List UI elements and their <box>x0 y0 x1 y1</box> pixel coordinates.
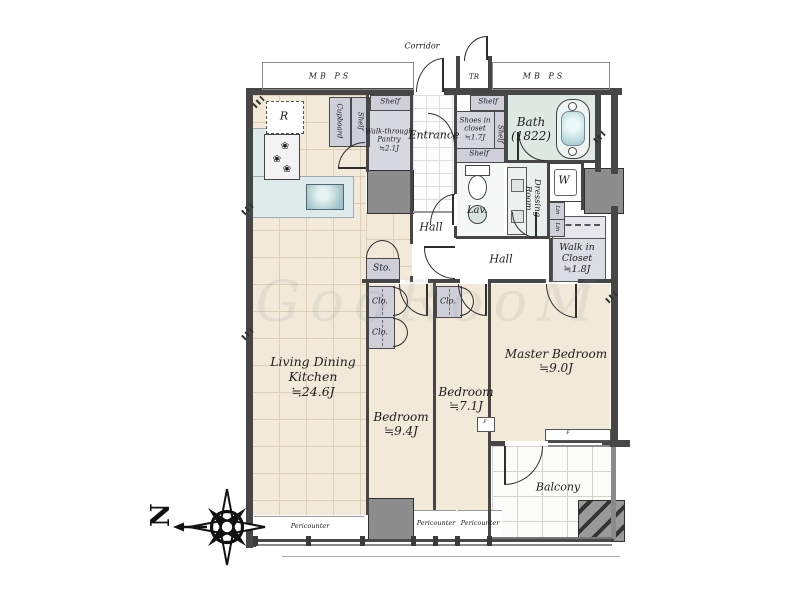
bedroom1-label: Bedroom ≒9.4J <box>373 410 428 438</box>
pericounter-label: Pericounter <box>461 520 500 528</box>
pantry-label: Walk-through Pantry ≒2.1J <box>365 128 413 153</box>
entrance-label: Entrance <box>408 130 459 143</box>
hall-center-label: Hall <box>489 254 512 267</box>
burner-icon: ❀ <box>273 154 281 166</box>
compass-rose: N <box>148 480 288 576</box>
balcony-door-leaf <box>504 446 506 484</box>
bathtub-inner <box>561 111 585 146</box>
balcony-front-line <box>492 537 612 539</box>
window-mullion <box>487 536 492 546</box>
window-mullion <box>433 536 438 546</box>
kitchen-sink <box>306 184 344 210</box>
shoes-closet-label: Shoes in closet ≒1.7J <box>459 116 490 141</box>
floor-plan: ❀ ❀ ❀ <box>0 0 800 600</box>
lav-label: Lav. <box>467 205 487 217</box>
wall-segment <box>611 206 618 446</box>
burner-icon: ❀ <box>281 141 289 153</box>
window-mullion <box>455 536 460 546</box>
wall-segment <box>491 441 505 446</box>
window-line <box>548 441 610 443</box>
wall-segment <box>504 160 600 163</box>
wall-segment <box>547 162 549 238</box>
fix-window-label: F <box>566 431 569 437</box>
wall-segment <box>246 88 253 548</box>
wall-segment <box>410 214 413 244</box>
shelf-label: Shelf <box>380 98 400 107</box>
entrance-door-arc <box>416 58 444 92</box>
column <box>367 170 414 214</box>
burner-icon: ❀ <box>283 164 291 176</box>
mb-ps-right-label: MB PS <box>523 71 565 80</box>
lin-label: Lin <box>553 206 559 215</box>
wall-segment <box>454 160 457 194</box>
balcony-label: Balcony <box>536 482 580 495</box>
balcony-railing-east <box>611 447 616 539</box>
dressing-room-label: Dressing Room <box>523 179 541 217</box>
pericounter-label: Pericounter <box>417 520 456 528</box>
bath-faucet-icon <box>568 102 577 111</box>
sto-label: Sto. <box>373 264 391 275</box>
watermark: GooRooM <box>255 270 604 335</box>
wall-segment <box>611 88 618 174</box>
bath-label: Bath (1822) <box>511 115 551 143</box>
hall-door-leaf <box>424 246 455 248</box>
bath-drain-icon <box>568 147 577 156</box>
lin-label: Lin <box>553 223 559 232</box>
mb-ps-left-label: MB PS <box>309 71 351 80</box>
window-mullion <box>306 536 311 546</box>
pantry-door-leaf <box>338 167 366 169</box>
window-mullion <box>360 536 365 546</box>
column-balcony <box>578 500 625 542</box>
hall-west-label: Hall <box>419 222 442 235</box>
ldk-label: Living Dining Kitchen ≒24.6J <box>270 355 356 399</box>
window-mullion <box>411 536 416 546</box>
wall-segment <box>410 95 413 214</box>
tr-wall <box>488 56 492 88</box>
tr-label: TR <box>469 73 479 81</box>
washer-label: W <box>558 175 569 188</box>
pericounter-label: Pericounter <box>291 523 330 531</box>
tr-door-leaf <box>486 36 488 60</box>
window-line <box>548 445 610 447</box>
ground-line <box>282 556 620 557</box>
corridor-label: Corridor <box>405 41 440 50</box>
fix-window <box>545 429 611 441</box>
toilet-bowl <box>468 175 487 200</box>
compass-north-letter: N <box>148 503 176 527</box>
walk-in-closet-label: Walk in Closet ≒1.8J <box>559 242 595 276</box>
master-bedroom-label: Master Bedroom ≒9.0J <box>505 347 607 375</box>
clo-label: Clo. <box>372 327 388 336</box>
shelf-label: Shelf <box>356 112 363 130</box>
shelf-label: Shelf <box>496 125 503 143</box>
cupboard-label: Cupboard <box>335 103 342 138</box>
wall-segment <box>454 95 457 160</box>
vanity-door <box>511 179 524 192</box>
column <box>368 498 414 540</box>
lav-door-leaf <box>452 194 454 225</box>
shelf-label: Shelf <box>469 150 489 159</box>
shelf-label: Shelf <box>478 98 498 107</box>
wall-segment <box>581 162 584 210</box>
fix-window-label: F <box>483 420 486 426</box>
tr-wall <box>456 56 460 88</box>
refrigerator-label: R <box>280 111 288 124</box>
column <box>584 168 624 214</box>
bedroom2-label: Bedroom ≒7.1J <box>438 385 493 413</box>
clo-label: Clo. <box>372 296 388 305</box>
entrance-door-leaf <box>442 58 444 92</box>
tr-door-arc <box>464 36 487 61</box>
clo-label: Clo. <box>440 296 456 305</box>
wall-segment <box>504 95 507 162</box>
